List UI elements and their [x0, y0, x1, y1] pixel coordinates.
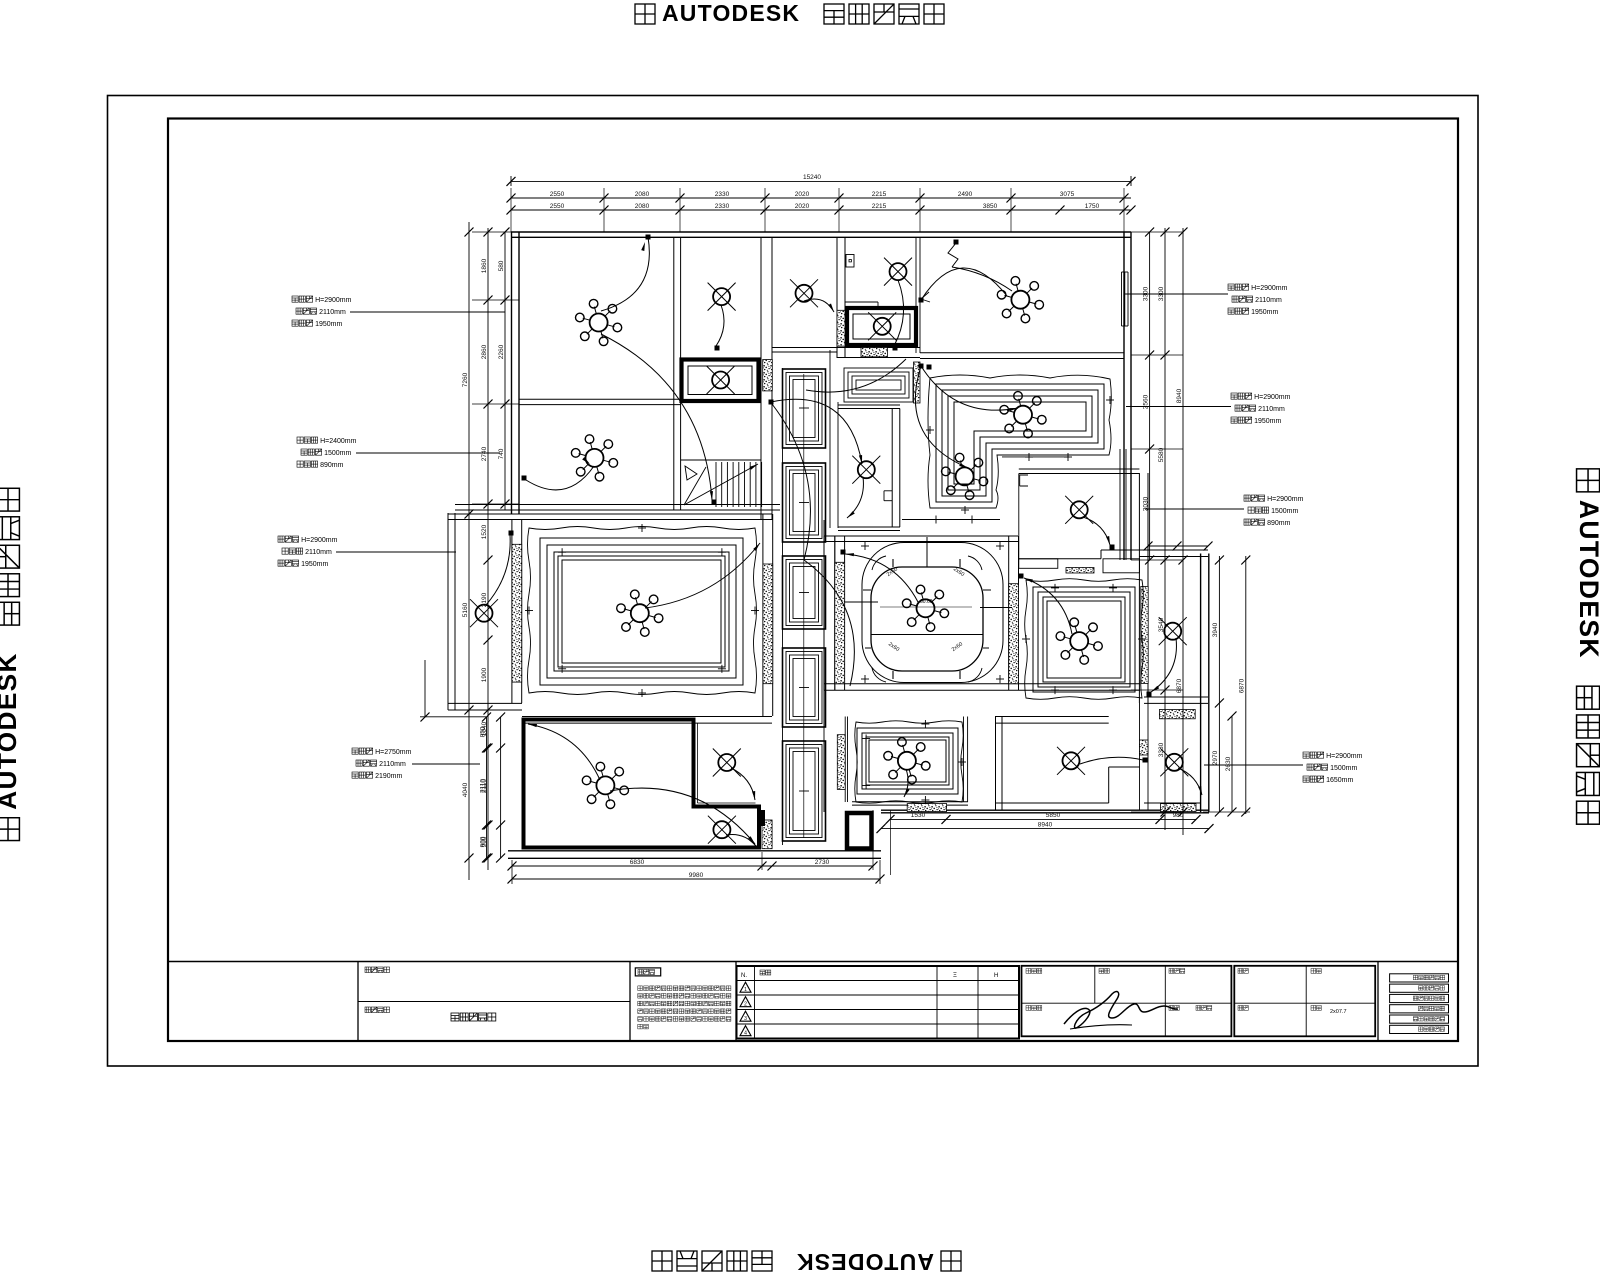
svg-text:1950mm: 1950mm: [315, 321, 342, 328]
svg-text:580: 580: [498, 260, 505, 271]
svg-text:2020: 2020: [795, 191, 810, 198]
svg-text:2110mm: 2110mm: [1258, 406, 1285, 413]
svg-text:AUTODESK: AUTODESK: [0, 652, 22, 810]
svg-text:2560: 2560: [1142, 394, 1149, 409]
svg-text:AUTODESK: AUTODESK: [1574, 500, 1600, 659]
svg-text:2110mm: 2110mm: [319, 309, 346, 316]
svg-text:AUTODESK: AUTODESK: [662, 0, 800, 26]
svg-text:H=2400mm: H=2400mm: [320, 438, 357, 445]
svg-text:H=2750mm: H=2750mm: [375, 749, 412, 756]
svg-text:1900: 1900: [481, 667, 488, 682]
svg-text:9980: 9980: [689, 872, 704, 879]
svg-text:2x07.7: 2x07.7: [1330, 1009, 1347, 1015]
svg-text:2330: 2330: [715, 203, 730, 210]
svg-text:1650mm: 1650mm: [1326, 777, 1353, 784]
svg-text:AUTODESK: AUTODESK: [796, 1249, 934, 1275]
svg-text:5160: 5160: [462, 602, 469, 617]
svg-text:4: 4: [744, 1031, 747, 1037]
svg-text:2080: 2080: [635, 203, 650, 210]
svg-text:2110mm: 2110mm: [305, 549, 332, 556]
svg-text:3850: 3850: [983, 203, 998, 210]
svg-text:1950mm: 1950mm: [1254, 418, 1281, 425]
svg-text:2630: 2630: [1225, 756, 1232, 771]
svg-text:1950mm: 1950mm: [301, 561, 328, 568]
svg-text:N.: N.: [741, 973, 747, 979]
svg-text:6830: 6830: [630, 859, 645, 866]
svg-text:2020: 2020: [795, 203, 810, 210]
svg-text:2490: 2490: [958, 191, 973, 198]
svg-text:H=2900mm: H=2900mm: [1251, 285, 1288, 292]
svg-text:1500mm: 1500mm: [1330, 765, 1357, 772]
svg-text:5850: 5850: [1046, 812, 1061, 819]
svg-text:2110mm: 2110mm: [1255, 297, 1282, 304]
svg-text:8940: 8940: [1176, 388, 1183, 403]
svg-text:6870: 6870: [1239, 678, 1246, 693]
svg-text:6870: 6870: [1176, 678, 1183, 693]
svg-text:890mm: 890mm: [1267, 520, 1291, 527]
svg-text:3075: 3075: [1060, 191, 1075, 198]
svg-text:850: 850: [479, 726, 486, 737]
svg-text:H=2900mm: H=2900mm: [1254, 394, 1291, 401]
svg-text:2190: 2190: [481, 592, 488, 607]
svg-text:1500mm: 1500mm: [324, 450, 351, 457]
svg-text:2110mm: 2110mm: [379, 761, 406, 768]
svg-text:H: H: [994, 973, 998, 979]
svg-text:900: 900: [479, 836, 486, 847]
svg-text:2860: 2860: [481, 344, 488, 359]
svg-text:H=2900mm: H=2900mm: [315, 297, 352, 304]
svg-text:2260: 2260: [498, 344, 505, 359]
svg-text:15240: 15240: [803, 174, 821, 181]
svg-text:H=2900mm: H=2900mm: [301, 537, 338, 544]
svg-text:1750: 1750: [1085, 203, 1100, 210]
svg-text:2110: 2110: [479, 779, 486, 793]
svg-text:4040: 4040: [462, 782, 469, 797]
svg-text:2740: 2740: [481, 446, 488, 461]
svg-text:3540: 3540: [1158, 617, 1165, 632]
svg-text:1: 1: [744, 987, 747, 993]
svg-text:1860: 1860: [481, 258, 488, 273]
svg-text:8940: 8940: [1038, 821, 1053, 828]
svg-text:740: 740: [498, 448, 505, 459]
svg-text:2550: 2550: [550, 191, 565, 198]
svg-text:7260: 7260: [462, 372, 469, 387]
svg-text:2730: 2730: [815, 859, 830, 866]
svg-text:5580: 5580: [1158, 447, 1165, 462]
svg-text:980: 980: [1173, 812, 1184, 819]
svg-text:890mm: 890mm: [320, 462, 344, 469]
svg-text:1500mm: 1500mm: [1271, 508, 1298, 515]
svg-text:1520: 1520: [481, 524, 488, 539]
svg-text:2215: 2215: [872, 191, 887, 198]
svg-text:2080: 2080: [635, 191, 650, 198]
svg-text:2190mm: 2190mm: [375, 773, 402, 780]
svg-text:3: 3: [744, 1016, 747, 1022]
svg-text:1530: 1530: [911, 812, 926, 819]
svg-text:2550: 2550: [550, 203, 565, 210]
svg-text:H=2900mm: H=2900mm: [1326, 753, 1363, 760]
svg-text:1950mm: 1950mm: [1251, 309, 1278, 316]
svg-text:2330: 2330: [715, 191, 730, 198]
svg-text:2970: 2970: [1212, 750, 1219, 765]
svg-text:Ξ: Ξ: [953, 973, 957, 979]
svg-text:2215: 2215: [872, 203, 887, 210]
svg-text:H=2900mm: H=2900mm: [1267, 496, 1304, 503]
svg-text:3330: 3330: [1158, 742, 1165, 757]
svg-text:3940: 3940: [1212, 622, 1219, 637]
svg-text:2: 2: [744, 1002, 747, 1008]
